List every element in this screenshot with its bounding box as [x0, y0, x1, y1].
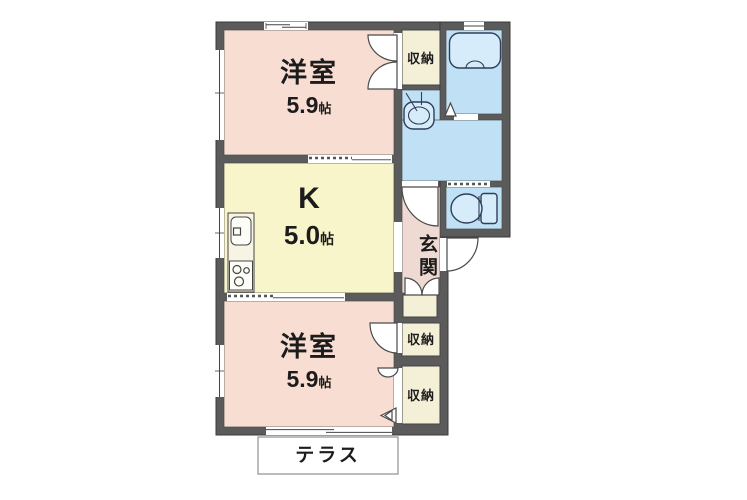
room-name: 洋室 — [224, 60, 394, 87]
closet-top-label: 収納 — [400, 52, 442, 65]
room-name: K — [224, 184, 394, 214]
window-top — [264, 22, 308, 30]
room-size: 5.0帖 — [224, 222, 394, 248]
shoe-cabinet-floor — [403, 295, 437, 317]
entrance-label: 玄関 — [406, 228, 436, 286]
kitchen-entrance-opening — [394, 222, 402, 272]
stove-icon — [230, 261, 253, 290]
room-size: 5.9帖 — [224, 94, 394, 117]
closet-bottom-label: 収納 — [400, 389, 442, 402]
terrace-label: テラス — [258, 446, 398, 465]
bathtub-icon — [450, 33, 501, 68]
bath-door-opening — [454, 114, 478, 120]
room-size: 5.9帖 — [224, 368, 394, 391]
window-terrace — [266, 427, 392, 435]
bedroom-top-slider-opening — [308, 155, 392, 163]
room-name: 洋室 — [224, 334, 394, 361]
bedroom-top-label: 洋室 5.9帖 — [224, 60, 394, 117]
washroom-door-opening — [402, 181, 438, 187]
bedroom-bottom-slider-opening — [227, 293, 345, 301]
closet-middle-label: 収納 — [400, 333, 442, 346]
floorplan-canvas: 洋室 5.9帖 K 5.0帖 洋室 5.9帖 収納 収納 収納 玄関 テラス — [0, 0, 747, 500]
toilet-icon — [451, 194, 497, 224]
front-door-arc — [447, 238, 478, 271]
kitchen-label: K 5.0帖 — [224, 184, 394, 248]
bedroom-bottom-label: 洋室 5.9帖 — [224, 334, 394, 391]
